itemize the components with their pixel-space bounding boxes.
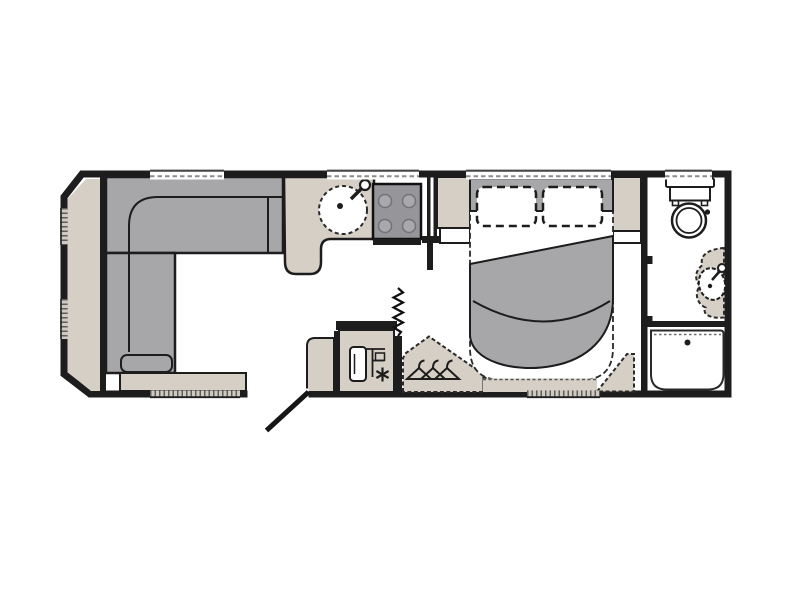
window-bottom-1	[150, 390, 240, 397]
shower-divider	[648, 321, 725, 327]
burner-icon	[403, 195, 416, 208]
tap-icon	[360, 180, 370, 190]
floorplan-canvas	[0, 0, 800, 600]
shower-drain-icon	[685, 340, 691, 346]
bedside-shelf-right	[613, 231, 641, 243]
bathroom-partition-wall	[641, 177, 648, 392]
toilet-cistern	[670, 187, 710, 201]
pillow-left	[477, 187, 536, 226]
bedside-shelf-left	[440, 228, 470, 243]
entry-side-cabinet	[307, 338, 334, 392]
shower-tray	[651, 331, 724, 390]
window-top-3	[466, 168, 611, 180]
burner-icon	[379, 220, 392, 233]
window-top-2	[327, 168, 419, 180]
sofa-top-seat	[106, 177, 283, 253]
door-jamb	[648, 256, 653, 264]
fridge-top-band	[336, 321, 397, 330]
bed-foot-step	[483, 379, 597, 393]
front-chest-seat	[120, 373, 246, 391]
partition-stub	[427, 243, 433, 270]
shower	[648, 321, 725, 390]
pillow-right	[543, 187, 602, 226]
burner-icon	[403, 220, 416, 233]
window-top-1	[150, 168, 224, 180]
window-front-1	[60, 208, 67, 245]
floor-plan	[0, 0, 800, 600]
flush-button-icon	[705, 209, 710, 214]
bedside-cabinet-left	[437, 177, 470, 228]
partition-end-bar	[422, 236, 439, 243]
sink-drain-icon	[337, 203, 343, 209]
window-front-2	[60, 299, 67, 339]
window-bottom-2	[527, 390, 600, 397]
front-window-shelf	[68, 179, 101, 391]
wardrobe-divider	[395, 336, 402, 392]
basin-drain-icon	[708, 284, 712, 288]
toilet-cistern-lid	[666, 179, 714, 188]
bedside-cabinet-right	[611, 177, 641, 231]
entrance	[248, 389, 309, 431]
basin-tap-icon	[718, 264, 726, 272]
kitchen-partition-wall	[427, 177, 431, 236]
hob-front-band	[373, 239, 421, 245]
kitchen-sink	[319, 186, 367, 234]
burner-icon	[379, 195, 392, 208]
window-top-4	[665, 168, 712, 180]
fridge-door	[350, 347, 366, 381]
